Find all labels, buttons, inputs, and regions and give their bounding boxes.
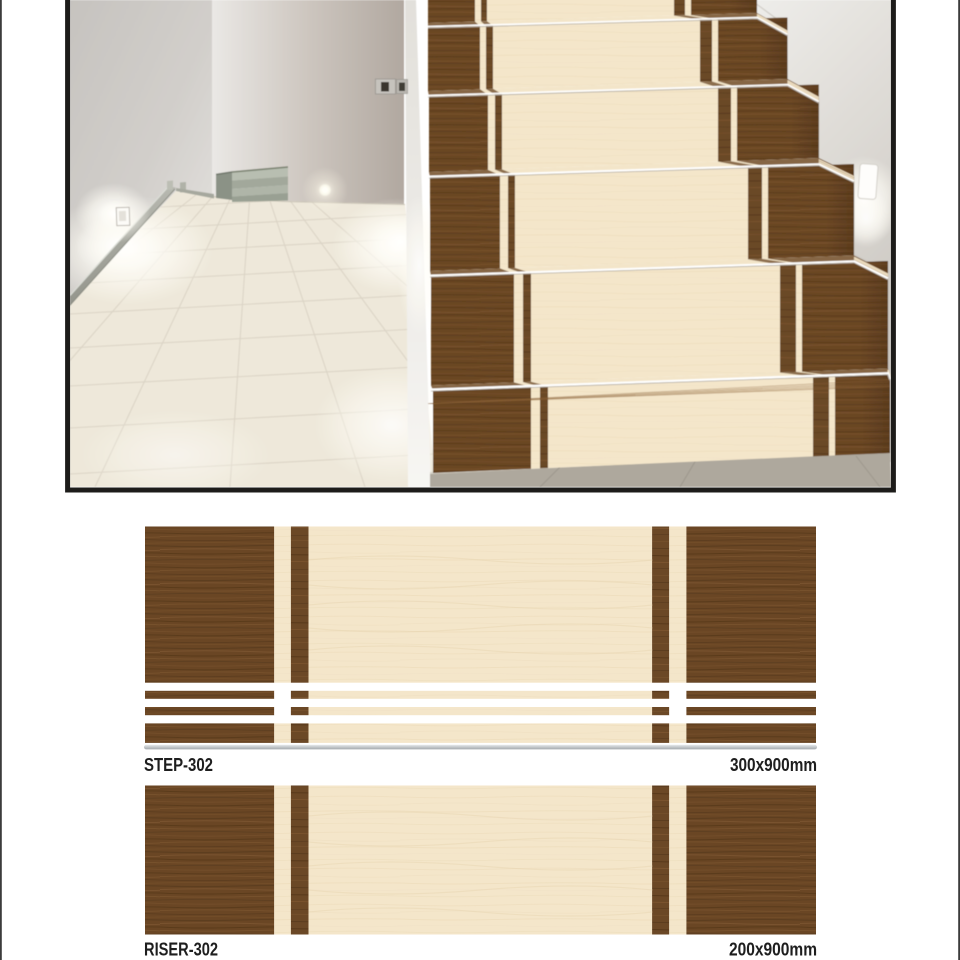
svg-text:200x900mm: 200x900mm [729,939,817,960]
svg-text:300x900mm: 300x900mm [730,754,817,775]
svg-text:RISER-302: RISER-302 [144,939,218,960]
svg-text:STEP-302: STEP-302 [144,754,213,775]
